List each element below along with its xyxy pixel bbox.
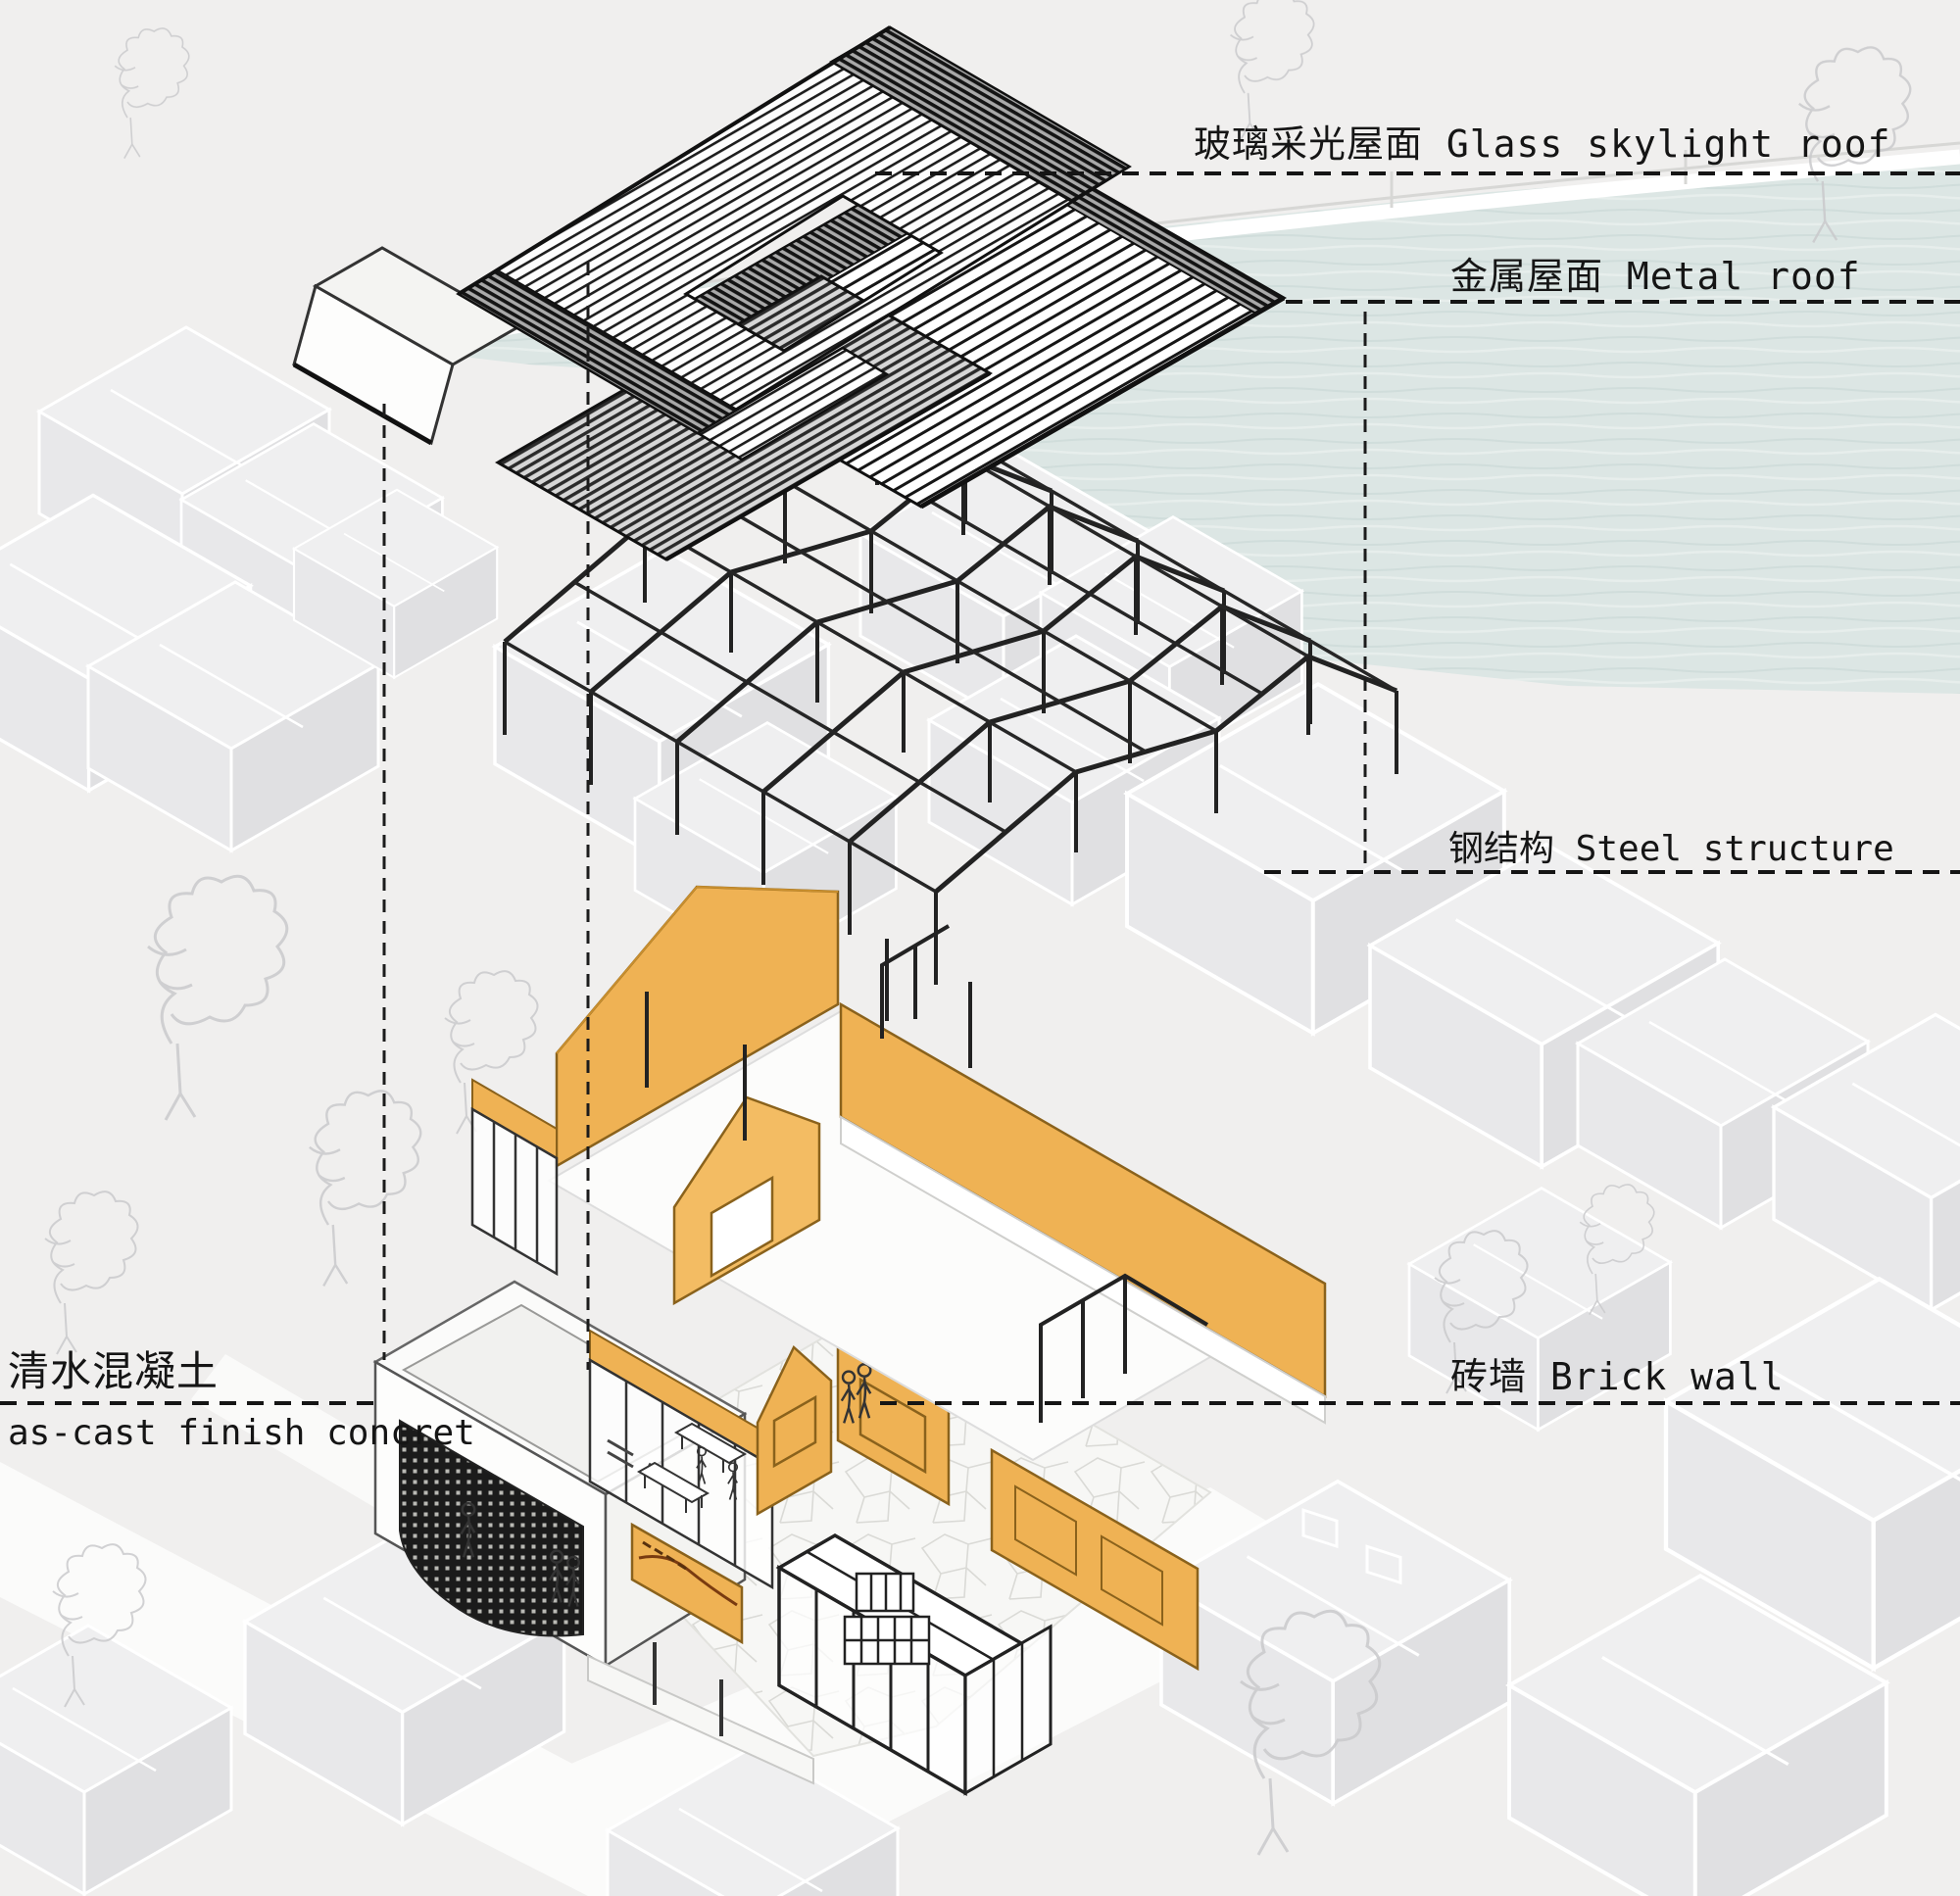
label-glass-skylight-roof: 玻璃采光屋面 Glass skylight roof (1194, 122, 1891, 166)
label-metal-roof: 金属屋面 Metal roof (1450, 255, 1861, 298)
exploded-axonometric-diagram: 玻璃采光屋面 Glass skylight roof 金属屋面 Metal ro… (0, 0, 1960, 1896)
label-concrete-zh: 清水混凝土 (8, 1347, 219, 1395)
label-steel-structure: 钢结构 Steel structure (1448, 829, 1894, 869)
label-brick-wall: 砖墙 Brick wall (1450, 1355, 1785, 1398)
label-concrete-en: as-cast finish concret (8, 1413, 475, 1453)
